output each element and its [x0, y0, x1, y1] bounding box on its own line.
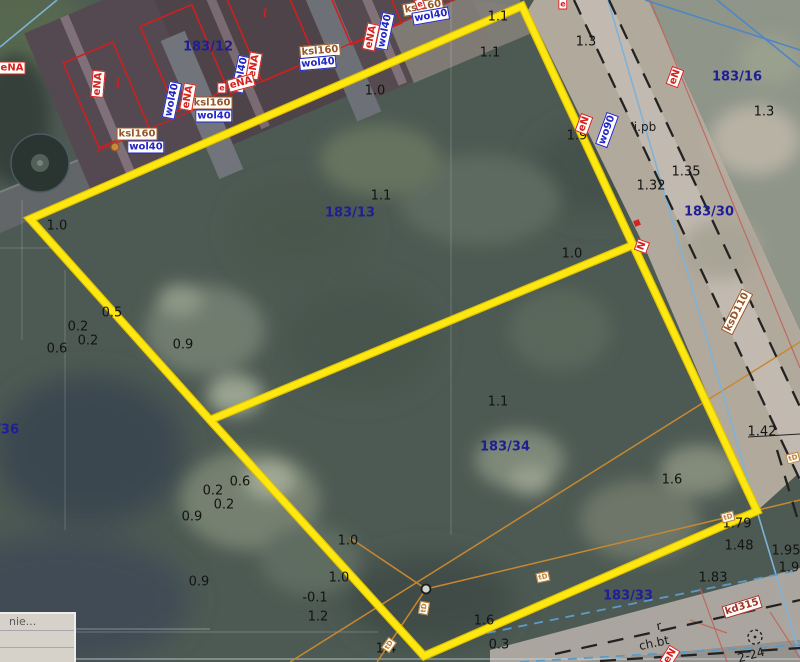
map-viewport[interactable]: 183/12183/13183/16183/30183/33183/34183/… [0, 0, 800, 662]
survey-point-circle [422, 585, 431, 594]
panel-item-truncated[interactable]: nie... [0, 614, 74, 631]
panel-item-empty-2[interactable] [0, 648, 74, 662]
utility-pole-marker [111, 143, 119, 151]
tree-circle-feature [11, 134, 69, 192]
panel-item-empty-1[interactable] [0, 631, 74, 648]
aerial-background [0, 0, 800, 662]
bottom-left-panel[interactable]: nie... [0, 612, 76, 662]
map-canvas [0, 0, 800, 662]
